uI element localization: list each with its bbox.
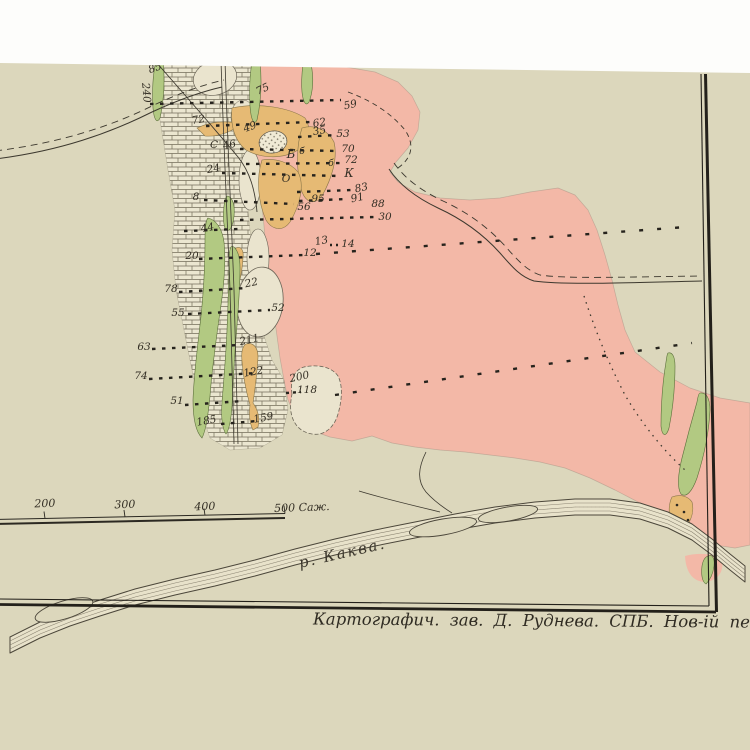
survey-point-label: 8 <box>193 191 200 203</box>
survey-point-label: 24 <box>205 162 221 176</box>
survey-point-label: 56 <box>297 201 311 213</box>
survey-point-label: 20 <box>184 250 199 262</box>
survey-point-label: К <box>343 166 354 180</box>
survey-point-label: 72 <box>191 113 207 127</box>
survey-point-label: б <box>328 158 334 169</box>
survey-point-label: 88 <box>371 198 385 210</box>
survey-point-label: 63 <box>137 341 151 353</box>
survey-point-label: 52 <box>271 302 285 314</box>
survey-point-label: 30 <box>378 211 392 223</box>
survey-point-label: 55 <box>171 307 185 319</box>
survey-point-label: 14 <box>341 238 354 250</box>
map-page: р. Каква. 200 300 400 500 Саж. 852407559… <box>0 0 750 750</box>
survey-point-label: 118 <box>297 384 317 396</box>
survey-point-label: Б <box>286 147 296 161</box>
survey-point-label: 53 <box>336 128 350 140</box>
survey-point-label: 12 <box>303 247 317 259</box>
scale-label: 300 <box>114 498 135 512</box>
survey-point-label: О <box>282 173 291 185</box>
map-caption: Картографич. зав. Д. Руднева. СПБ. Нов-і… <box>313 609 743 631</box>
survey-point-label: 95 <box>311 193 325 205</box>
scale-label: 200 <box>33 497 55 511</box>
survey-point-label: 240 <box>139 81 153 103</box>
survey-point-label: С <box>210 139 218 151</box>
map-canvas: р. Каква. 200 300 400 500 Саж. 852407559… <box>0 0 750 750</box>
survey-point-label: 72 <box>344 154 358 166</box>
scale-label: 500 Саж. <box>274 500 330 515</box>
survey-point-label: 74 <box>134 370 147 382</box>
survey-point-label: 78 <box>164 283 178 295</box>
scale-label: 400 <box>193 500 215 514</box>
survey-point-label: 44 <box>199 221 215 235</box>
survey-point-label: б <box>299 146 305 157</box>
survey-point-label: 51 <box>170 395 183 407</box>
survey-point-label: 35 <box>312 124 328 138</box>
white-margin <box>0 0 750 73</box>
survey-point-label: 13 <box>314 234 330 248</box>
